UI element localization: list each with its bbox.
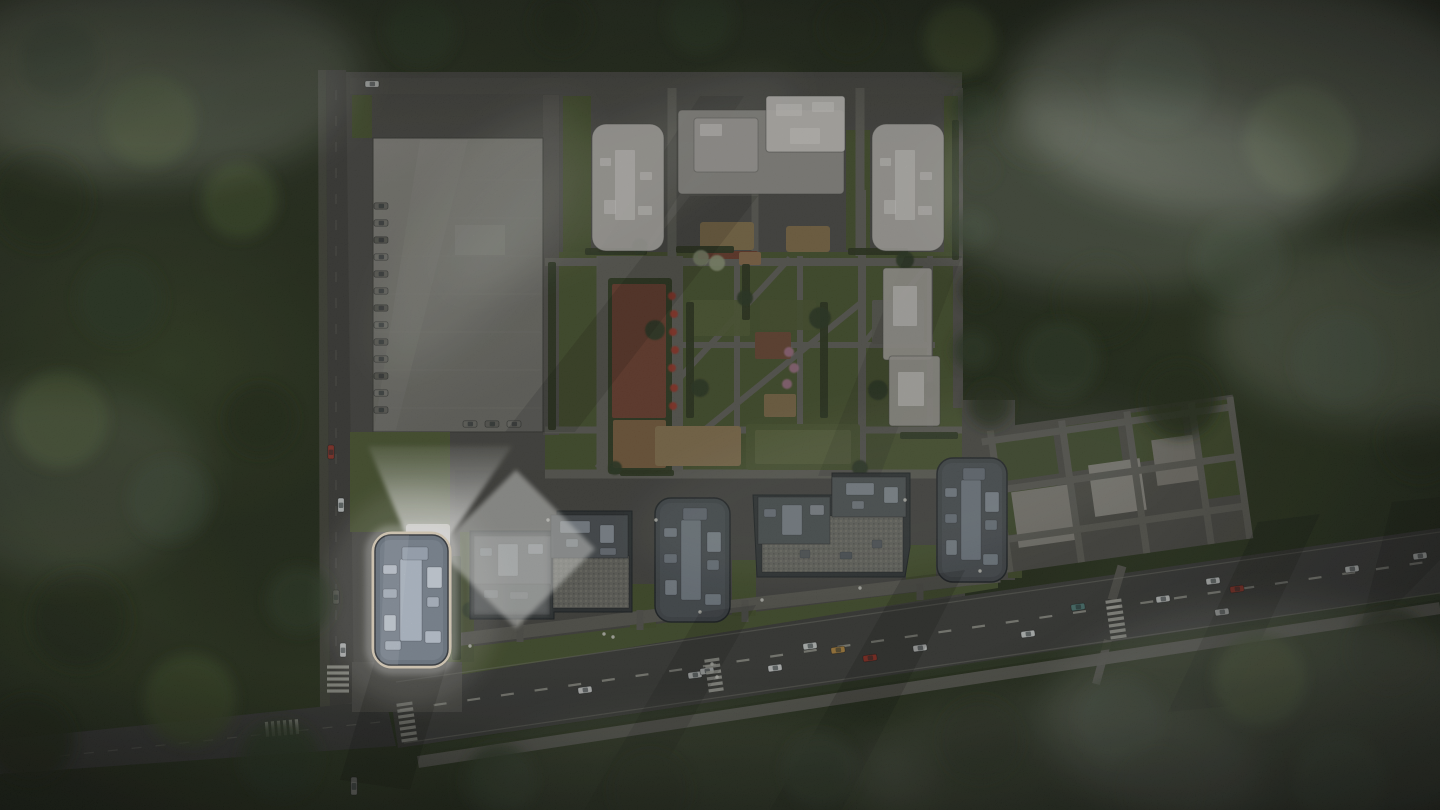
masterplan-canvas <box>0 0 1440 810</box>
film-grain-light <box>0 0 1440 810</box>
masterplan-scene <box>0 0 1440 810</box>
